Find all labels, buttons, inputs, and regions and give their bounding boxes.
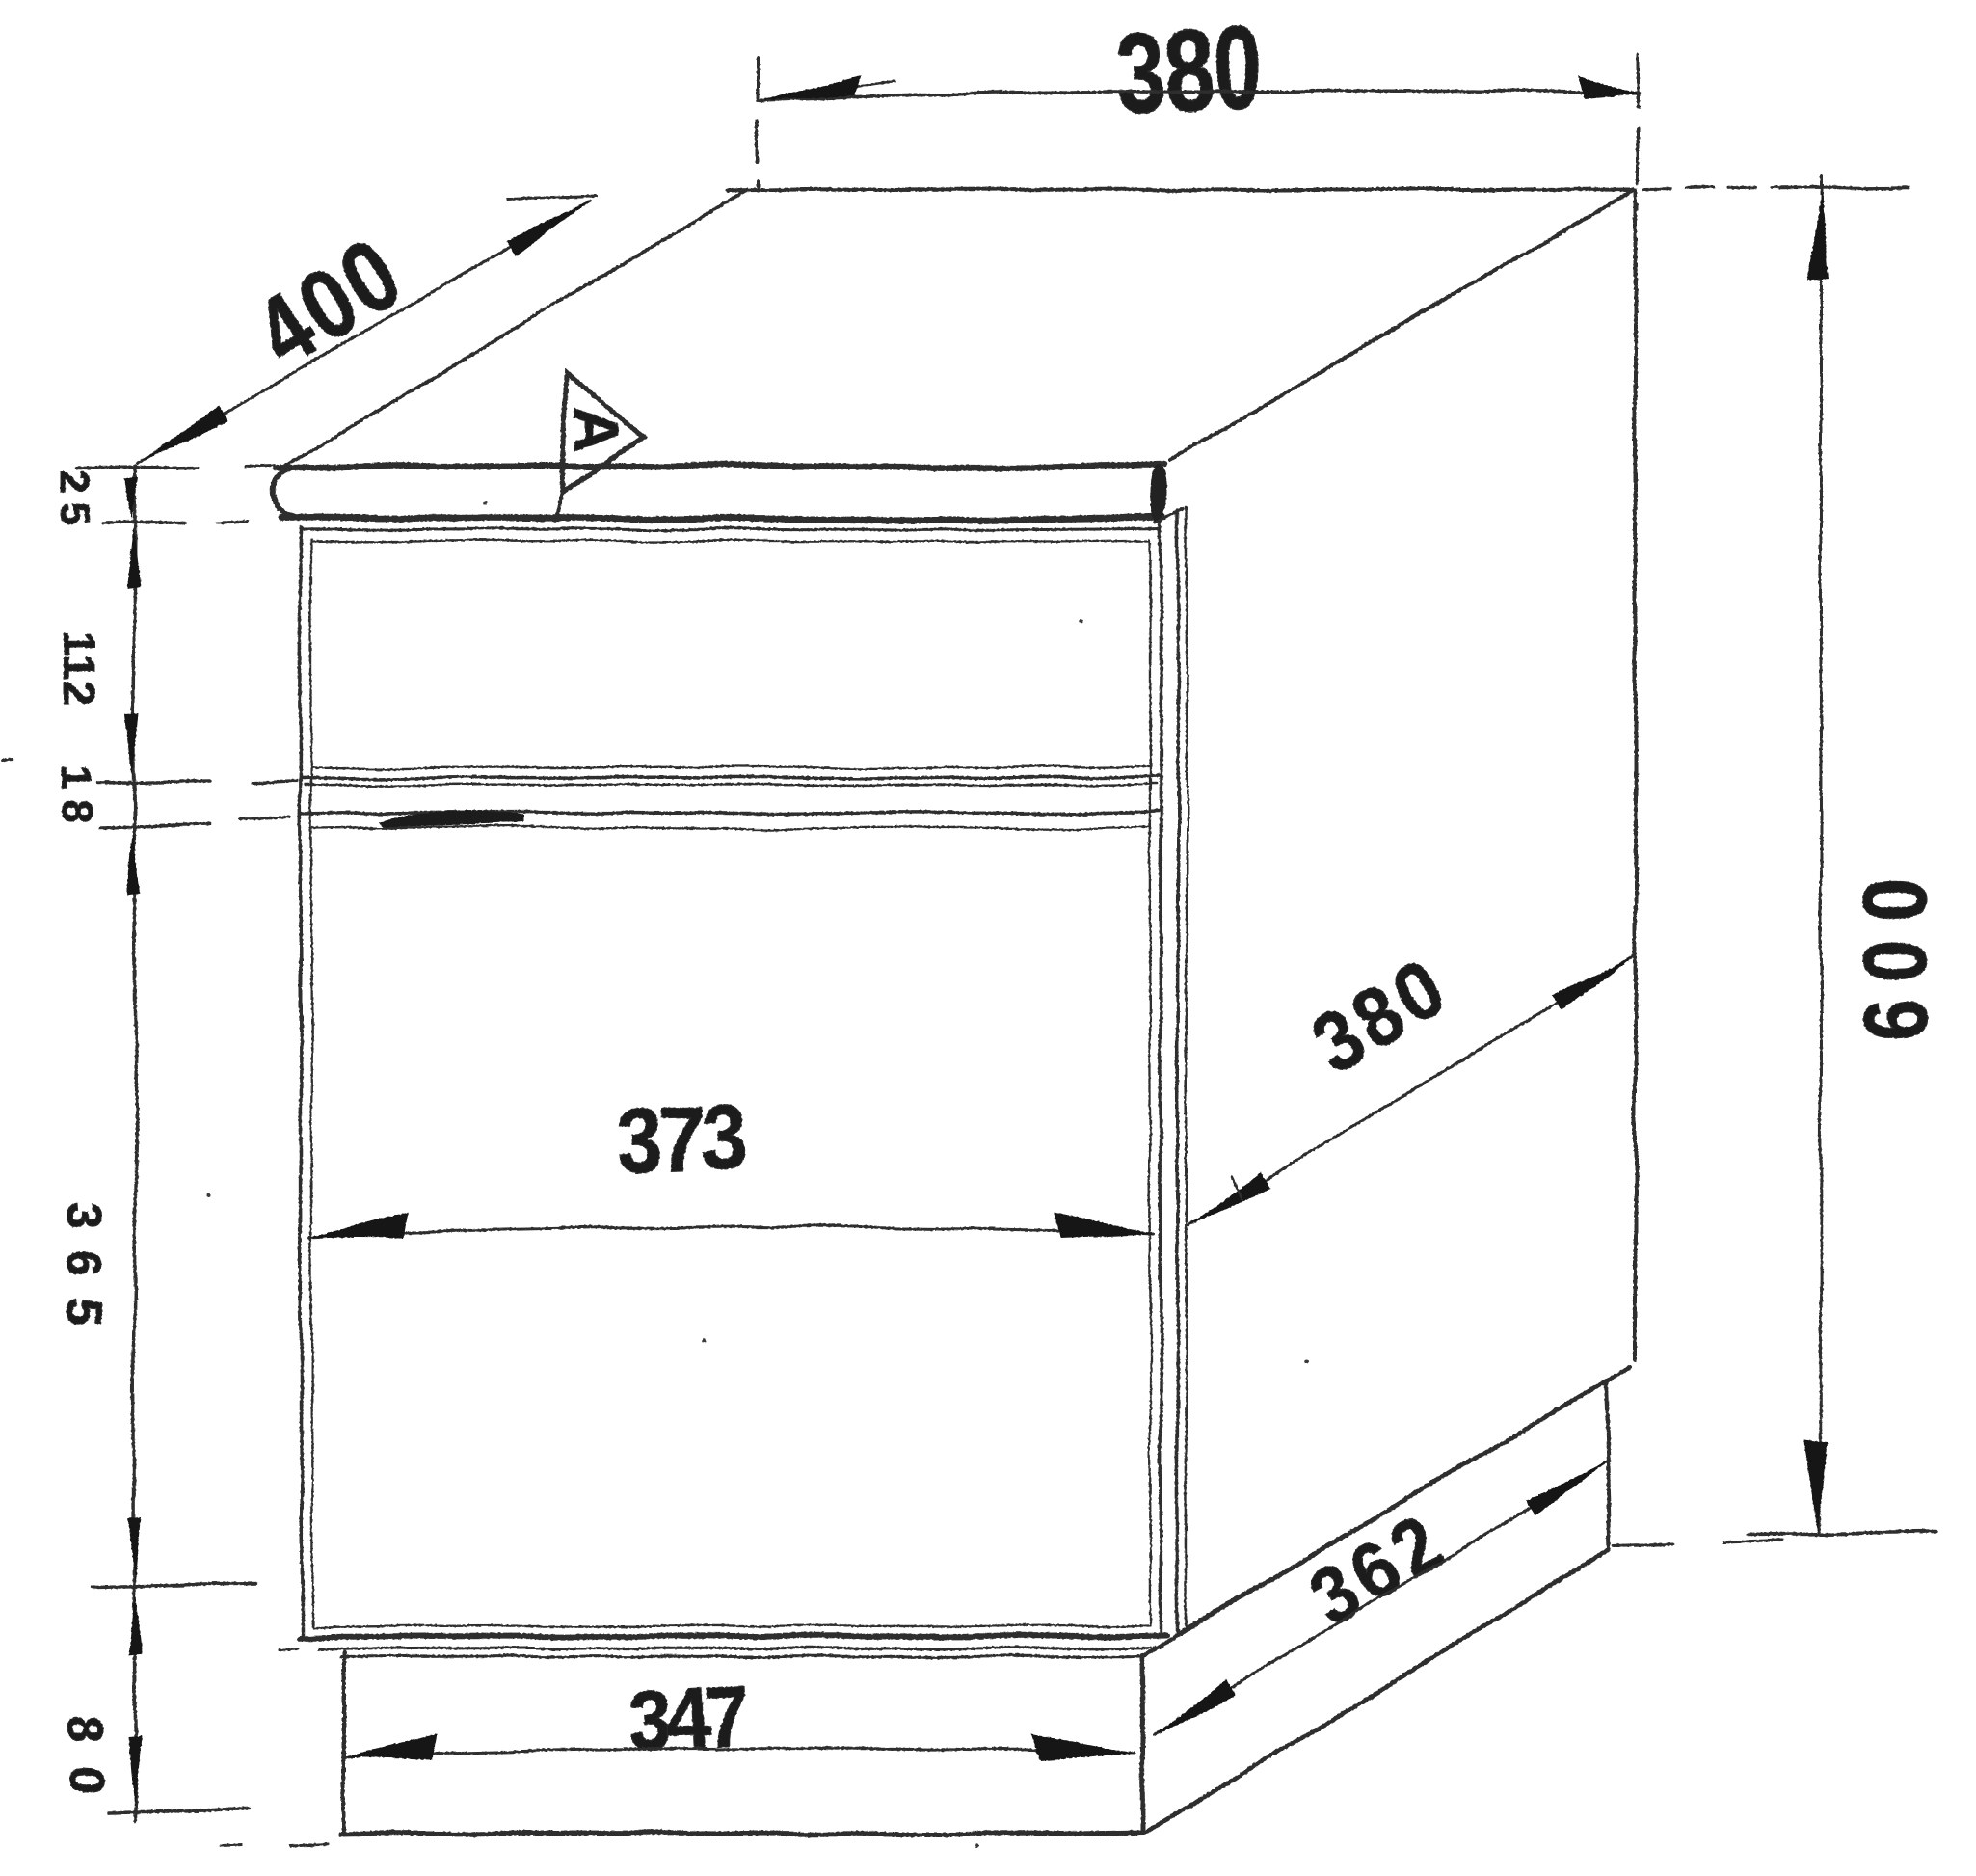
svg-text:112: 112 [54, 632, 104, 706]
svg-text:80: 80 [59, 1716, 113, 1793]
svg-text:A: A [562, 408, 631, 452]
svg-text:600: 600 [1847, 878, 1945, 1042]
svg-text:365: 365 [57, 1202, 111, 1326]
svg-text:347: 347 [626, 1667, 751, 1770]
svg-text:400: 400 [238, 219, 419, 389]
svg-text:362: 362 [1295, 1496, 1456, 1643]
svg-text:380: 380 [1297, 942, 1462, 1091]
svg-text:25: 25 [53, 470, 98, 524]
svg-text:380: 380 [1112, 1, 1266, 138]
svg-text:373: 373 [616, 1086, 750, 1193]
svg-text:18: 18 [53, 765, 100, 823]
